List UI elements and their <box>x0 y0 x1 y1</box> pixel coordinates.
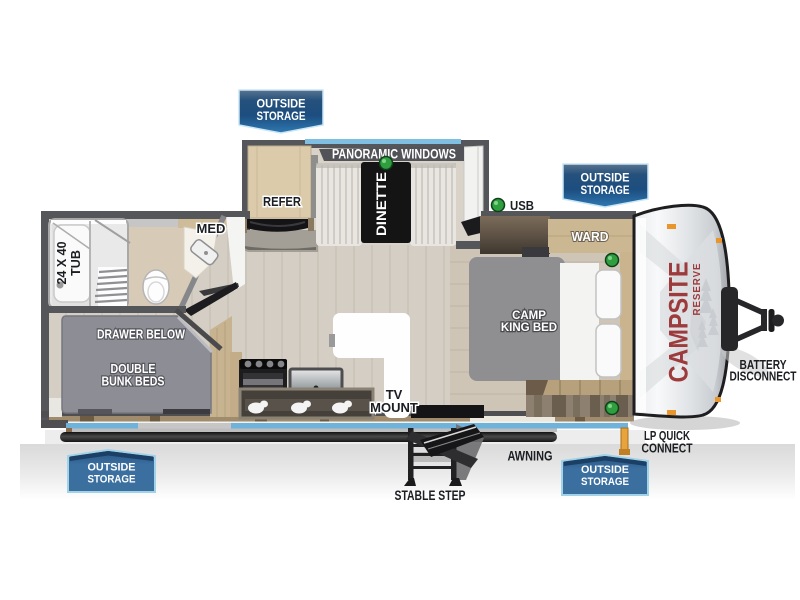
svg-text:CAMP: CAMP <box>512 310 546 322</box>
svg-text:AWNING: AWNING <box>508 448 553 464</box>
svg-text:REFER: REFER <box>263 194 302 209</box>
svg-text:CAMPSITE: CAMPSITE <box>664 262 694 383</box>
svg-text:USB: USB <box>510 198 534 213</box>
svg-text:TUB: TUB <box>69 250 83 276</box>
svg-text:STORAGE: STORAGE <box>88 474 136 486</box>
svg-text:24 X 40: 24 X 40 <box>55 241 69 284</box>
svg-text:OUTSIDE: OUTSIDE <box>88 462 136 474</box>
svg-text:STABLE STEP: STABLE STEP <box>395 488 466 503</box>
svg-text:RESERVE: RESERVE <box>692 263 703 316</box>
svg-text:DISCONNECT: DISCONNECT <box>730 370 797 384</box>
svg-text:STORAGE: STORAGE <box>581 183 630 197</box>
svg-text:BUNK BEDS: BUNK BEDS <box>102 375 165 389</box>
svg-text:STORAGE: STORAGE <box>581 476 629 488</box>
svg-text:DINETTE: DINETTE <box>374 172 389 236</box>
svg-text:OUTSIDE: OUTSIDE <box>581 464 629 476</box>
svg-text:PANORAMIC WINDOWS: PANORAMIC WINDOWS <box>332 147 456 162</box>
svg-text:WARD: WARD <box>572 229 609 244</box>
svg-text:CONNECT: CONNECT <box>642 442 693 456</box>
svg-text:DRAWER BELOW: DRAWER BELOW <box>97 328 185 342</box>
svg-text:STORAGE: STORAGE <box>257 109 306 123</box>
svg-text:KING BED: KING BED <box>501 322 557 334</box>
svg-text:MED: MED <box>197 221 226 236</box>
svg-text:MOUNT: MOUNT <box>370 400 418 415</box>
